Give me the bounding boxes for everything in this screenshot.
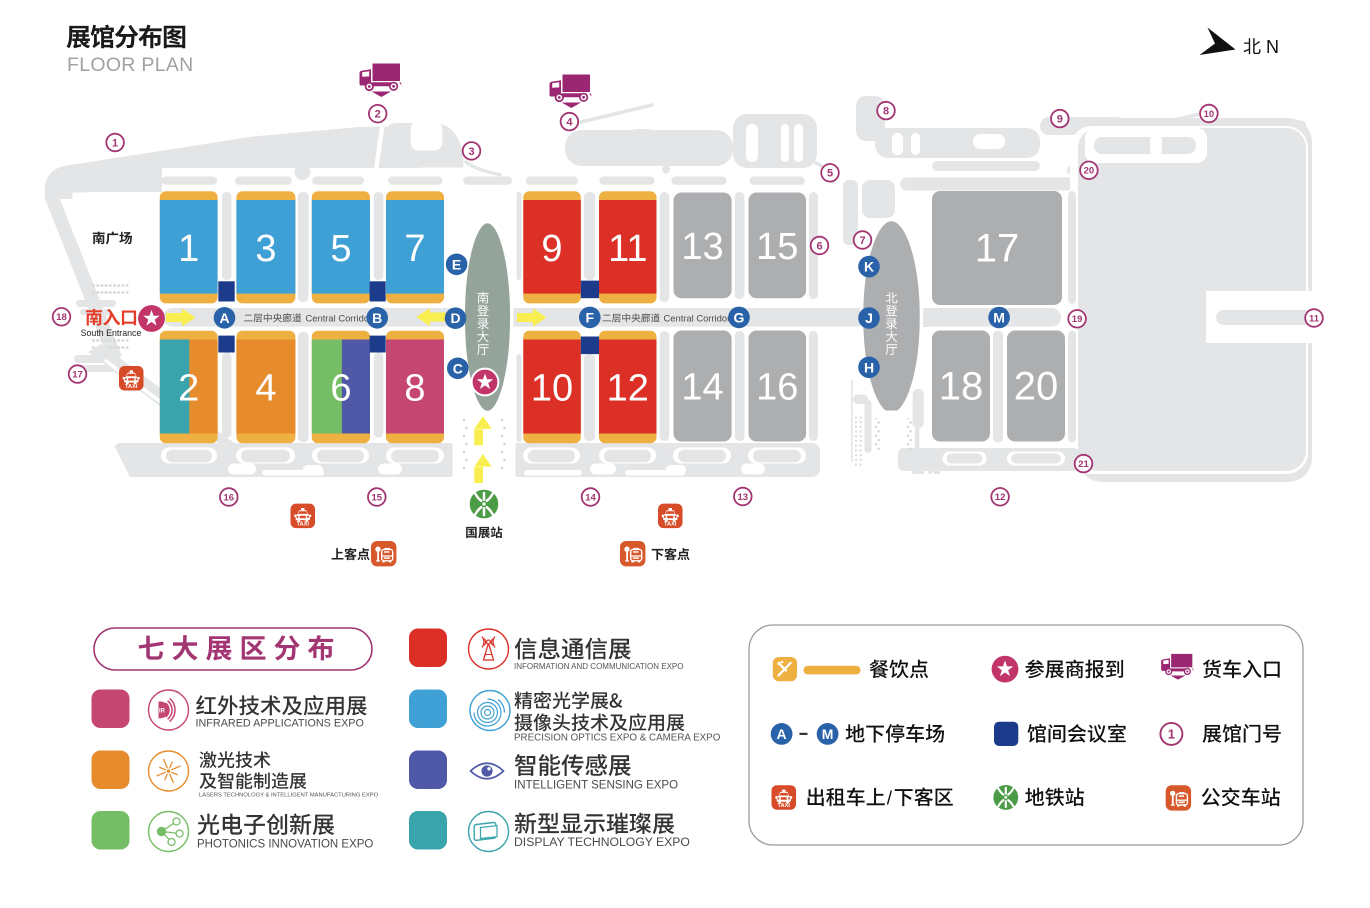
svg-text:21: 21 [1078,459,1089,470]
svg-text:G: G [734,309,745,325]
svg-text:20: 20 [1014,365,1059,409]
svg-text:PRECISION OPTICS EXPO & CAMERA: PRECISION OPTICS EXPO & CAMERA EXPO [514,733,721,744]
svg-text:2: 2 [178,368,199,410]
svg-text:4: 4 [566,117,573,129]
svg-text:K: K [864,259,874,275]
svg-text:5: 5 [330,228,351,270]
svg-text:12: 12 [995,492,1006,503]
svg-text:12: 12 [607,368,649,410]
svg-text:D: D [450,310,460,326]
svg-text:20: 20 [1084,166,1095,177]
svg-text:19: 19 [1072,314,1083,325]
svg-text:IR: IR [159,709,166,715]
svg-text:14: 14 [681,367,723,409]
svg-text:INFRARED APPLICATIONS EXPO: INFRARED APPLICATIONS EXPO [196,718,364,730]
svg-text:11: 11 [1309,313,1320,324]
svg-text:1: 1 [178,228,199,270]
svg-text:17: 17 [72,370,83,381]
svg-text:1: 1 [112,137,118,149]
svg-text:18: 18 [939,365,984,409]
svg-text:18: 18 [56,312,67,323]
svg-text:1: 1 [1168,727,1175,742]
svg-text:F: F [586,309,595,325]
svg-text:DISPLAY TECHNOLOGY EXPO: DISPLAY TECHNOLOGY EXPO [514,835,690,849]
svg-text:16: 16 [756,367,798,409]
svg-text:15: 15 [756,226,798,268]
svg-text:8: 8 [883,106,889,118]
svg-text:PHOTONICS INNOVATION EXPO: PHOTONICS INNOVATION EXPO [197,839,373,851]
svg-text:Central Corridor: Central Corridor [306,313,373,324]
svg-text:10: 10 [1204,109,1215,120]
svg-text:6: 6 [330,368,351,410]
svg-text:11: 11 [608,228,647,270]
svg-text:/: / [887,789,893,810]
svg-text:South Entrance: South Entrance [81,328,142,338]
svg-text:M: M [993,310,1005,326]
svg-text:2: 2 [375,109,381,121]
svg-text:LASERS TECHNOLOGY & INTELLIGEN: LASERS TECHNOLOGY & INTELLIGENT MANUFACT… [199,793,379,799]
svg-text:13: 13 [681,226,723,268]
svg-text:10: 10 [531,368,573,410]
svg-text:9: 9 [541,228,562,270]
svg-text:13: 13 [738,492,749,503]
svg-text:A: A [777,726,787,742]
svg-text:15: 15 [372,492,383,503]
svg-text:8: 8 [404,368,425,410]
svg-text:INFORMATION AND COMMUNICATION: INFORMATION AND COMMUNICATION EXPO [514,662,683,671]
svg-text:INTELLIGENT SENSING EXPO: INTELLIGENT SENSING EXPO [514,780,678,792]
svg-text:3: 3 [468,146,474,158]
svg-text:7: 7 [404,228,425,270]
svg-text:7: 7 [859,235,865,247]
svg-text:N: N [1266,37,1279,57]
svg-text:3: 3 [255,228,276,270]
svg-text:9: 9 [1057,114,1063,126]
svg-text:14: 14 [585,492,596,503]
svg-text:6: 6 [816,240,822,252]
svg-text:B: B [372,310,382,326]
svg-text:17: 17 [975,227,1020,271]
svg-text:5: 5 [827,168,833,180]
svg-text:FLOOR PLAN: FLOOR PLAN [67,54,194,76]
svg-text:E: E [452,256,461,272]
svg-text:Central Corridor: Central Corridor [664,313,731,324]
svg-text:4: 4 [255,368,276,410]
svg-text:J: J [865,310,873,326]
svg-text:M: M [822,726,834,742]
svg-text:16: 16 [224,492,235,503]
svg-text:C: C [453,360,463,376]
svg-text:H: H [864,359,874,375]
svg-text:A: A [219,310,229,326]
